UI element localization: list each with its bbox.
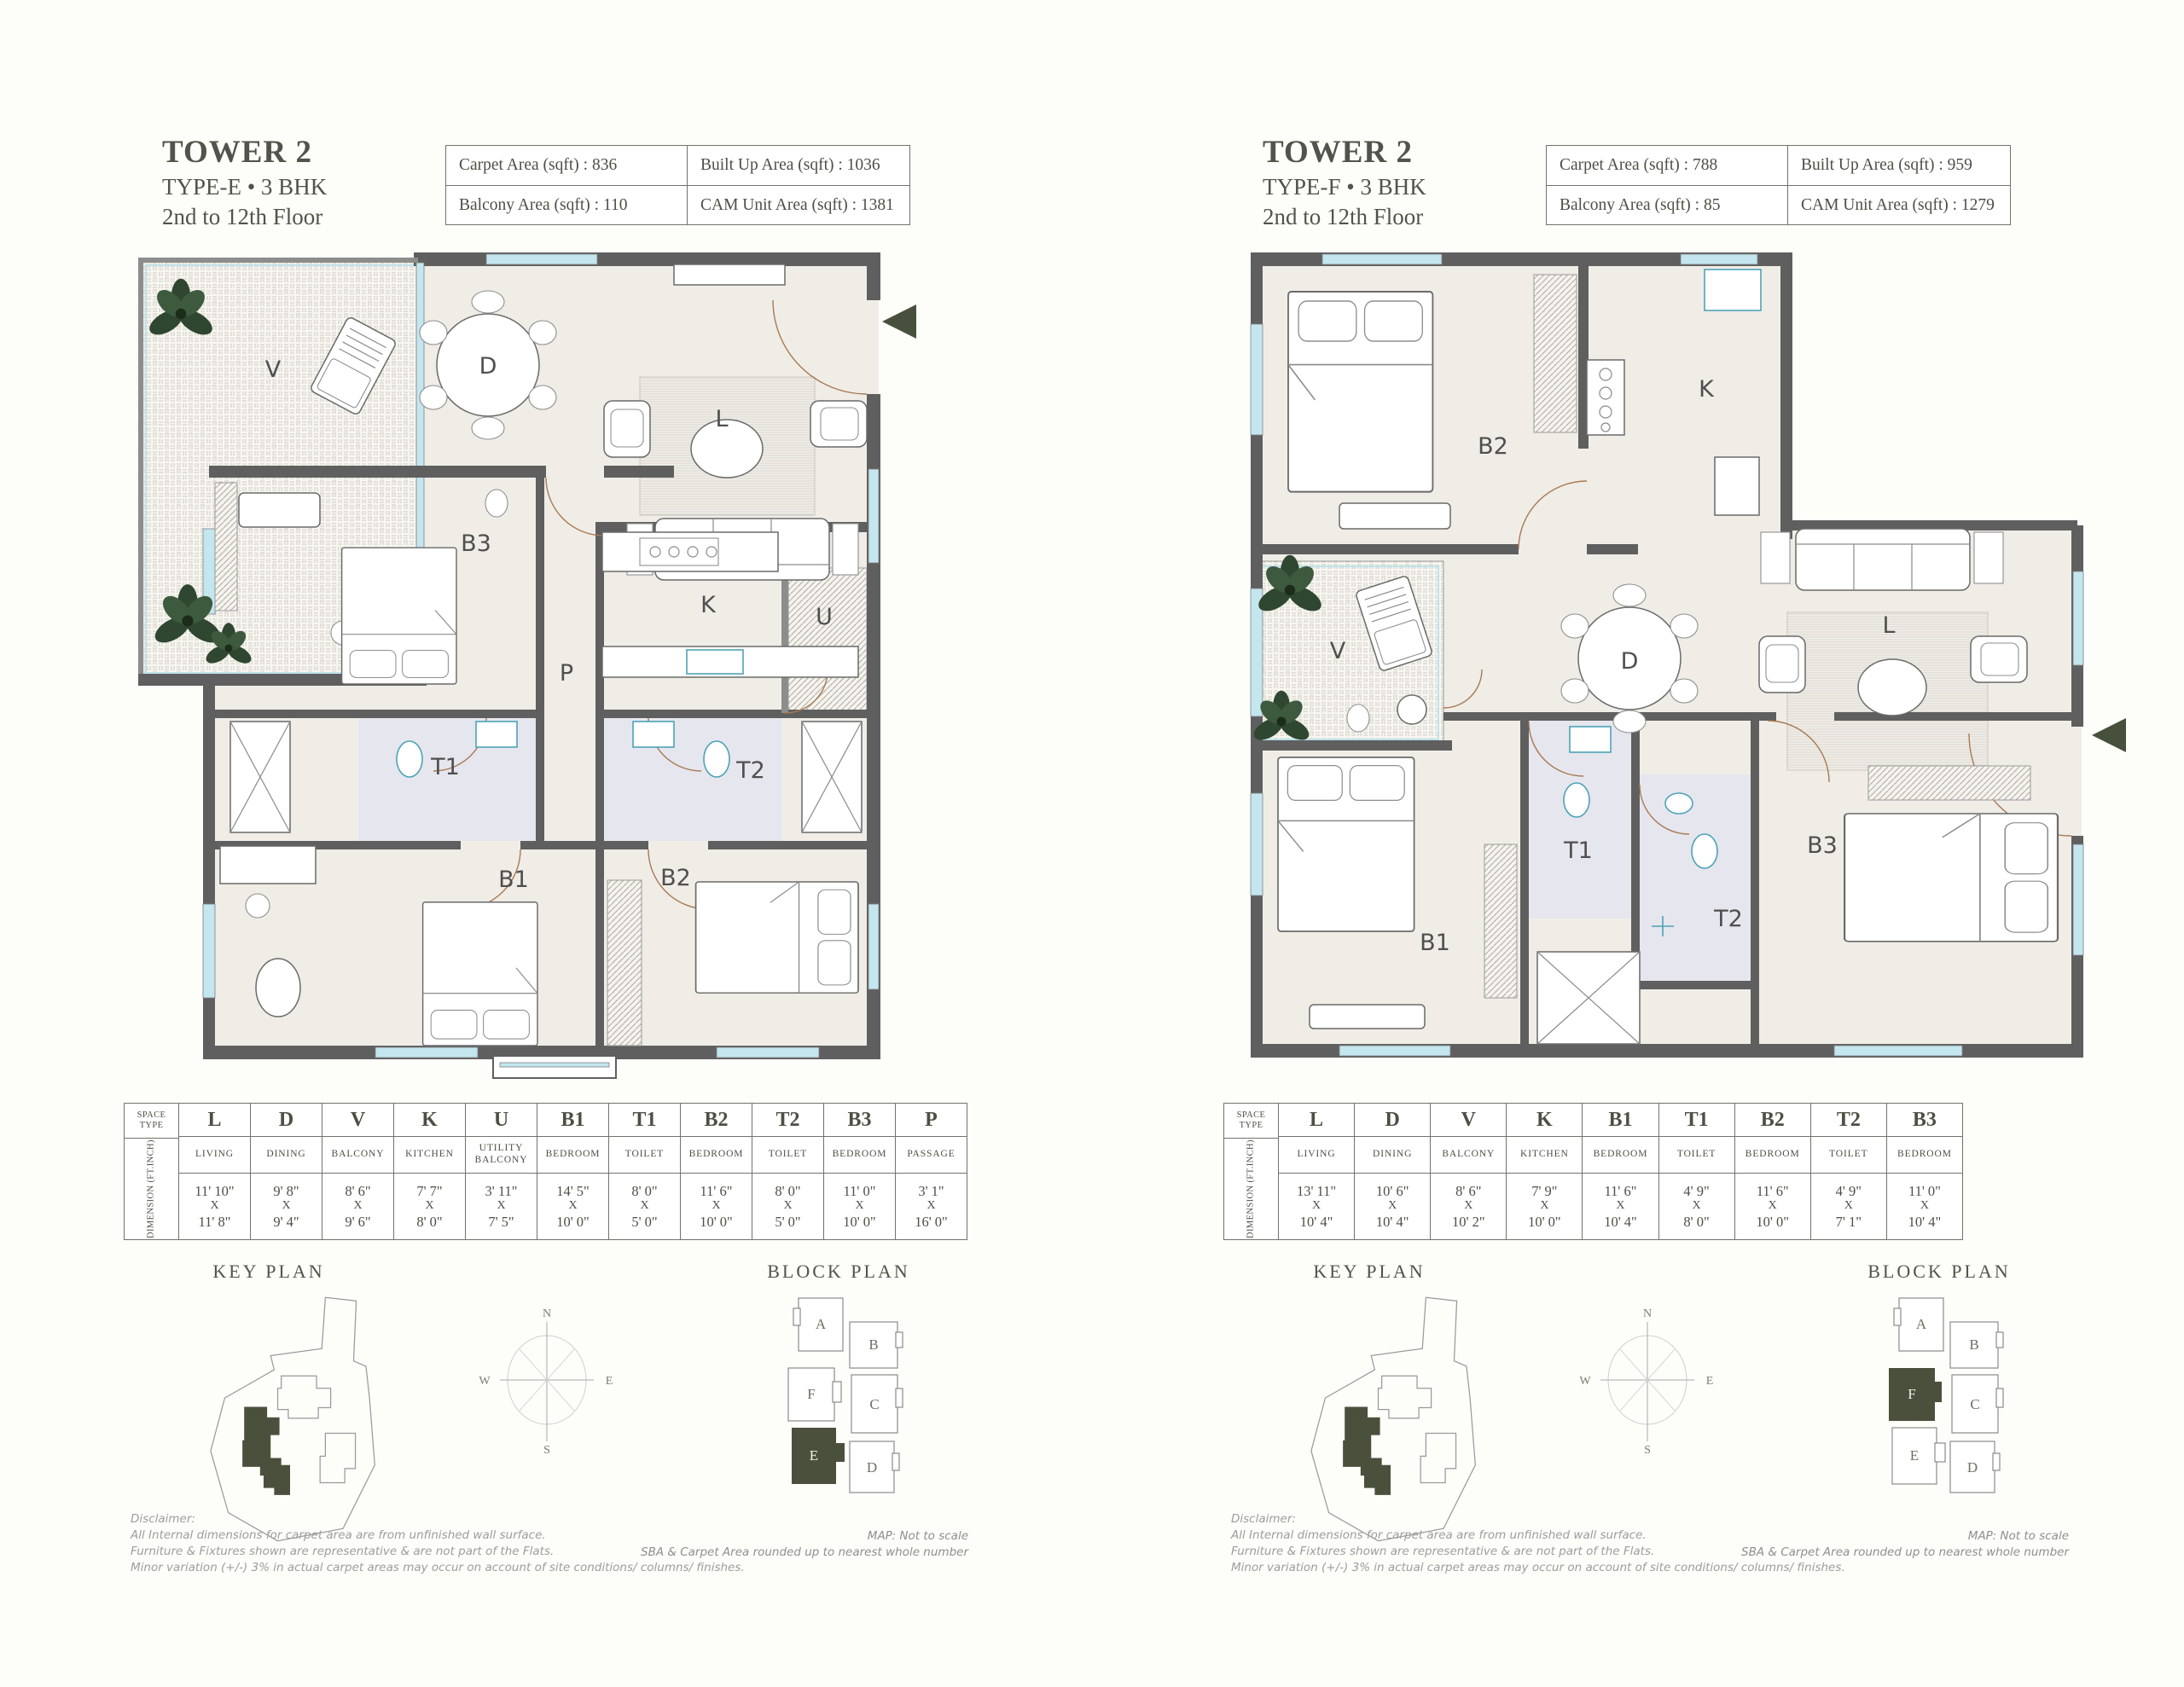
dim-separator: X	[855, 1199, 863, 1214]
dim-first: 8' 6"	[1455, 1183, 1481, 1199]
right-toilet2-floor	[1640, 774, 1759, 988]
dim-separator: X	[568, 1199, 577, 1214]
compass-west-label: W	[1579, 1375, 1591, 1388]
room-label-p: P	[560, 660, 573, 687]
dim-first: 7' 7"	[416, 1183, 442, 1199]
dim-second: 10' 4"	[1376, 1214, 1409, 1230]
dim-value-k: 7' 9"X10' 0"	[1507, 1174, 1582, 1239]
dim-value-t1: 4' 9"X8' 0"	[1659, 1174, 1734, 1239]
room-label-l: L	[1882, 612, 1895, 639]
dim-second: 10' 0"	[1756, 1214, 1789, 1230]
space-code: V	[1431, 1104, 1506, 1137]
right-map-note: MAP: Not to scale SBA & Carpet Area roun…	[1689, 1528, 2069, 1561]
dim-second: 10' 4"	[1908, 1214, 1942, 1230]
dim-first: 13' 11"	[1297, 1183, 1336, 1199]
left-block-plan-title: BLOCK PLAN	[741, 1261, 937, 1283]
dim-second: 8' 0"	[1683, 1214, 1709, 1230]
dim-separator: X	[1693, 1199, 1701, 1214]
room-label-t2: T2	[735, 757, 765, 784]
dim-table-label-column: SPACE TYPEDIMENSION (FT.INCH)	[1224, 1104, 1278, 1239]
room-label-k: K	[700, 592, 717, 618]
right-compass: N E S W	[1575, 1303, 1720, 1457]
dim-table-column-v: VBALCONY8' 6"X9' 6"	[322, 1104, 393, 1239]
left-compass: N E S W	[474, 1303, 619, 1457]
space-name: BEDROOM	[681, 1137, 752, 1174]
disclaimer-line: Minor variation (+/-) 3% in actual carpe…	[131, 1560, 745, 1576]
dim-value-t1: 8' 0"X5' 0"	[609, 1174, 680, 1239]
dim-separator: X	[425, 1199, 433, 1214]
compass-north-label: N	[1643, 1307, 1652, 1320]
space-code: V	[322, 1104, 393, 1137]
dim-value-v: 8' 6"X9' 6"	[322, 1174, 393, 1239]
dim-value-b2: 11' 6"X10' 0"	[1735, 1174, 1810, 1239]
dim-second: 10' 0"	[556, 1214, 590, 1230]
map-note-line1: MAP: Not to scale	[1689, 1528, 2069, 1545]
dimension-row-label: DIMENSION (FT.INCH)	[125, 1139, 178, 1239]
right-area-table: Carpet Area (sqft) : 788 Built Up Area (…	[1546, 145, 2011, 225]
room-label-b2: B2	[660, 865, 691, 891]
dim-separator: X	[1388, 1199, 1397, 1214]
dim-first: 3' 11"	[485, 1183, 518, 1199]
dim-value-v: 8' 6"X10' 2"	[1431, 1174, 1506, 1239]
left-key-plan	[149, 1292, 431, 1548]
dim-first: 11' 0"	[844, 1183, 876, 1199]
dim-separator: X	[353, 1199, 362, 1214]
dim-separator: X	[1464, 1199, 1472, 1214]
space-code: T1	[609, 1104, 680, 1137]
disclaimer-line: Minor variation (+/-) 3% in actual carpe…	[1231, 1560, 1845, 1576]
space-code: T2	[752, 1104, 823, 1137]
room-label-v: V	[1330, 638, 1346, 664]
compass-south-label: S	[543, 1444, 550, 1457]
space-code: U	[466, 1104, 537, 1137]
left-floor-range: 2nd to 12th Floor	[162, 206, 327, 229]
room-label-t2: T2	[1713, 906, 1743, 932]
space-code: B1	[537, 1104, 608, 1137]
dim-table-column-b2: B2BEDROOM11' 6"X10' 0"	[1734, 1104, 1810, 1239]
block-f-label: F	[1908, 1386, 1915, 1402]
right-dimension-table: SPACE TYPEDIMENSION (FT.INCH)LLIVING13' …	[1223, 1103, 1963, 1240]
right-shaft	[1537, 952, 1640, 1044]
dim-value-p: 3' 1"X16' 0"	[896, 1174, 967, 1239]
dim-second: 8' 0"	[416, 1214, 442, 1230]
dim-table-column-p: PPASSAGE3' 1"X16' 0"	[895, 1104, 967, 1239]
dim-value-t2: 8' 0"X5' 0"	[752, 1174, 823, 1239]
space-name: TOILET	[752, 1137, 823, 1174]
right-key-plan-title: KEY PLAN	[1275, 1261, 1463, 1283]
space-name: UTILITY BALCONY	[466, 1137, 537, 1174]
space-name: PASSAGE	[896, 1137, 967, 1174]
dim-value-d: 9' 8"X9' 4"	[251, 1174, 322, 1239]
dim-first: 10' 6"	[1376, 1183, 1409, 1199]
dim-second: 9' 4"	[273, 1214, 299, 1230]
right-carpet-area: Carpet Area (sqft) : 788	[1547, 146, 1787, 185]
dim-second: 10' 0"	[1528, 1214, 1561, 1230]
left-map-note: MAP: Not to scale SBA & Carpet Area roun…	[589, 1528, 968, 1561]
left-type-subtitle: TYPE-E • 3 BHK	[162, 176, 327, 199]
space-code: K	[1507, 1104, 1582, 1137]
dim-first: 11' 6"	[1757, 1183, 1789, 1199]
dim-separator: X	[1769, 1199, 1777, 1214]
dim-table-column-b1: B1BEDROOM11' 6"X10' 4"	[1582, 1104, 1658, 1239]
right-title-block: TOWER 2 TYPE-F • 3 BHK 2nd to 12th Floor	[1263, 136, 1426, 229]
room-label-d: D	[1621, 648, 1639, 675]
dim-table-column-b3: B3BEDROOM11' 0"X10' 4"	[1886, 1104, 1962, 1239]
dim-separator: X	[1920, 1199, 1929, 1214]
compass-east-label: E	[1706, 1375, 1714, 1388]
dim-table-column-l: LLIVING11' 10"X11' 8"	[178, 1104, 250, 1239]
room-label-v: V	[265, 357, 282, 383]
left-balcony-area: Balcony Area (sqft) : 110	[446, 185, 687, 224]
block-f-label: F	[807, 1386, 815, 1402]
disclaimer-heading: Disclaimer:	[131, 1511, 745, 1528]
room-label-d: D	[479, 353, 497, 380]
space-code: D	[1355, 1104, 1430, 1137]
dim-second: 10' 0"	[700, 1214, 733, 1230]
block-c-label: C	[1970, 1396, 1979, 1412]
right-bedroom3-furniture	[1844, 766, 2058, 942]
dim-first: 8' 0"	[775, 1183, 800, 1199]
dim-table-column-t2: T2TOILET8' 0"X5' 0"	[752, 1104, 823, 1239]
compass-south-label: S	[1644, 1444, 1651, 1457]
dim-first: 4' 9"	[1683, 1183, 1709, 1199]
dim-value-k: 7' 7"X8' 0"	[394, 1174, 465, 1239]
space-name: BEDROOM	[824, 1137, 895, 1174]
space-code: D	[251, 1104, 322, 1137]
right-balcony-area: Balcony Area (sqft) : 85	[1547, 185, 1787, 224]
dim-second: 5' 0"	[775, 1214, 800, 1230]
dim-value-l: 11' 10"X11' 8"	[179, 1174, 250, 1239]
block-e-label: E	[1910, 1447, 1919, 1464]
dim-second: 10' 4"	[1604, 1214, 1637, 1230]
block-a-label: A	[1916, 1316, 1927, 1332]
dim-first: 11' 0"	[1908, 1183, 1941, 1199]
space-type-corner-label: SPACE TYPE	[1224, 1104, 1278, 1139]
right-floor-plan: B2KVDLT1T2B3B1	[1237, 247, 2141, 1083]
dim-second: 7' 1"	[1836, 1214, 1862, 1230]
map-note-line2: SBA & Carpet Area rounded up to nearest …	[589, 1545, 968, 1561]
room-label-b3: B3	[1807, 832, 1838, 859]
dim-first: 11' 6"	[1605, 1183, 1637, 1199]
dim-value-u: 3' 11"X7' 5"	[466, 1174, 537, 1239]
dim-table-column-d: DDINING10' 6"X10' 4"	[1354, 1104, 1430, 1239]
dim-value-b1: 14' 5"X10' 0"	[537, 1174, 608, 1239]
right-block-plan-title: BLOCK PLAN	[1841, 1261, 2037, 1283]
space-name: BEDROOM	[537, 1137, 608, 1174]
dim-table-column-k: KKITCHEN7' 7"X8' 0"	[393, 1104, 465, 1239]
dim-second: 10' 0"	[843, 1214, 876, 1230]
compass-north-label: N	[543, 1307, 551, 1320]
left-tower-title: TOWER 2	[162, 136, 327, 168]
space-code: L	[179, 1104, 250, 1137]
dim-separator: X	[926, 1199, 935, 1214]
left-carpet-area: Carpet Area (sqft) : 836	[446, 146, 687, 185]
space-name: BALCONY	[1431, 1137, 1506, 1174]
dim-separator: X	[497, 1199, 505, 1214]
space-code: K	[394, 1104, 465, 1137]
room-label-b2: B2	[1478, 433, 1508, 460]
dimension-row-label: DIMENSION (FT.INCH)	[1224, 1139, 1278, 1239]
left-title-block: TOWER 2 TYPE-E • 3 BHK 2nd to 12th Floor	[162, 136, 327, 229]
compass-east-label: E	[606, 1375, 613, 1388]
dim-value-t2: 4' 9"X7' 1"	[1811, 1174, 1886, 1239]
left-key-plan-title: KEY PLAN	[175, 1261, 363, 1283]
dim-value-b3: 11' 0"X10' 0"	[824, 1174, 895, 1239]
dim-separator: X	[1616, 1199, 1624, 1214]
room-label-u: U	[816, 604, 833, 630]
dim-table-column-b2: B2BEDROOM11' 6"X10' 0"	[680, 1104, 752, 1239]
dim-second: 7' 5"	[488, 1214, 514, 1230]
dim-first: 9' 8"	[273, 1183, 299, 1199]
space-name: BEDROOM	[1887, 1137, 1962, 1174]
dim-first: 7' 9"	[1531, 1183, 1557, 1199]
dim-table-column-l: LLIVING13' 11"X10' 4"	[1278, 1104, 1354, 1239]
dim-first: 4' 9"	[1836, 1183, 1862, 1199]
dim-separator: X	[1844, 1199, 1853, 1214]
dim-second: 10' 2"	[1452, 1214, 1485, 1230]
space-name: DINING	[251, 1137, 322, 1174]
dim-table-column-v: VBALCONY8' 6"X10' 2"	[1430, 1104, 1506, 1239]
left-utility-floor	[788, 568, 867, 713]
space-type-corner-label: SPACE TYPE	[125, 1104, 178, 1139]
dim-table-label-column: SPACE TYPEDIMENSION (FT.INCH)	[125, 1104, 178, 1239]
left-floor-plan: VDLB3KUPT1T2B1B2	[128, 247, 938, 1083]
room-label-t1: T1	[1563, 838, 1593, 864]
dim-second: 5' 0"	[631, 1214, 657, 1230]
room-label-b1: B1	[1420, 930, 1450, 956]
space-name: BALCONY	[322, 1137, 393, 1174]
block-a-label: A	[816, 1316, 827, 1332]
right-block-plan: A B F C E D	[1858, 1290, 2037, 1537]
dim-separator: X	[1540, 1199, 1548, 1214]
dim-table-column-t1: T1TOILET8' 0"X5' 0"	[608, 1104, 680, 1239]
left-dimension-table: SPACE TYPEDIMENSION (FT.INCH)LLIVING11' …	[124, 1103, 967, 1240]
dim-separator: X	[640, 1199, 648, 1214]
dim-value-b2: 11' 6"X10' 0"	[681, 1174, 752, 1239]
dim-second: 16' 0"	[915, 1214, 948, 1230]
right-builtup-area: Built Up Area (sqft) : 959	[1787, 146, 2010, 185]
dim-table-column-t2: T2TOILET4' 9"X7' 1"	[1810, 1104, 1886, 1239]
space-name: LIVING	[1279, 1137, 1354, 1174]
space-name: BEDROOM	[1735, 1137, 1810, 1174]
right-type-subtitle: TYPE-F • 3 BHK	[1263, 176, 1426, 199]
right-cam-area: CAM Unit Area (sqft) : 1279	[1787, 185, 2010, 224]
right-floor-range: 2nd to 12th Floor	[1263, 206, 1426, 229]
disclaimer-heading: Disclaimer:	[1231, 1511, 1845, 1528]
dim-value-d: 10' 6"X10' 4"	[1355, 1174, 1430, 1239]
left-block-plan: A B F C E D	[758, 1290, 937, 1537]
left-area-table: Carpet Area (sqft) : 836 Built Up Area (…	[445, 145, 910, 225]
space-name: TOILET	[1659, 1137, 1734, 1174]
map-note-line1: MAP: Not to scale	[589, 1528, 968, 1545]
dim-table-column-u: UUTILITY BALCONY3' 11"X7' 5"	[465, 1104, 537, 1239]
room-label-l: L	[715, 406, 728, 432]
dim-table-column-b3: B3BEDROOM11' 0"X10' 0"	[823, 1104, 895, 1239]
space-code: P	[896, 1104, 967, 1137]
dim-separator: X	[783, 1199, 792, 1214]
block-c-label: C	[869, 1396, 879, 1412]
left-builtup-area: Built Up Area (sqft) : 1036	[687, 146, 909, 185]
dim-first: 11' 6"	[700, 1183, 733, 1199]
space-name: TOILET	[609, 1137, 680, 1174]
dim-first: 3' 1"	[918, 1183, 944, 1199]
compass-west-label: W	[479, 1375, 491, 1388]
dim-table-column-b1: B1BEDROOM14' 5"X10' 0"	[537, 1104, 608, 1239]
dim-first: 8' 6"	[345, 1183, 370, 1199]
room-label-b1: B1	[498, 867, 529, 893]
dim-value-l: 13' 11"X10' 4"	[1279, 1174, 1354, 1239]
dim-separator: X	[712, 1199, 720, 1214]
dim-first: 14' 5"	[556, 1183, 590, 1199]
space-name: KITCHEN	[1507, 1137, 1582, 1174]
room-label-b3: B3	[461, 530, 491, 557]
dim-second: 10' 4"	[1300, 1214, 1333, 1230]
space-code: B2	[681, 1104, 752, 1137]
space-name: DINING	[1355, 1137, 1430, 1174]
dim-value-b3: 11' 0"X10' 4"	[1887, 1174, 1962, 1239]
space-code: B2	[1735, 1104, 1810, 1137]
dim-table-column-t1: T1TOILET4' 9"X8' 0"	[1658, 1104, 1734, 1239]
dim-separator: X	[282, 1199, 290, 1214]
block-e-label: E	[810, 1447, 818, 1464]
right-tower-title: TOWER 2	[1263, 136, 1426, 168]
space-name: BEDROOM	[1583, 1137, 1658, 1174]
room-label-t1: T1	[430, 754, 460, 780]
dim-value-b1: 11' 6"X10' 4"	[1583, 1174, 1658, 1239]
dim-separator: X	[210, 1199, 218, 1214]
block-b-label: B	[1969, 1336, 1978, 1353]
space-code: B1	[1583, 1104, 1658, 1137]
space-code: B3	[1887, 1104, 1962, 1137]
block-d-label: D	[867, 1459, 877, 1475]
dim-second: 11' 8"	[199, 1214, 231, 1230]
dim-second: 9' 6"	[345, 1214, 370, 1230]
block-b-label: B	[868, 1336, 878, 1353]
left-cam-area: CAM Unit Area (sqft) : 1381	[687, 185, 909, 224]
dim-table-column-d: DDINING9' 8"X9' 4"	[250, 1104, 322, 1239]
space-name: TOILET	[1811, 1137, 1886, 1174]
right-entrance-arrow-icon	[2092, 718, 2126, 752]
dim-first: 8' 0"	[631, 1183, 657, 1199]
map-note-line2: SBA & Carpet Area rounded up to nearest …	[1689, 1545, 2069, 1561]
left-entrance-arrow-icon	[882, 304, 916, 339]
space-code: B3	[824, 1104, 895, 1137]
space-code: L	[1279, 1104, 1354, 1137]
block-d-label: D	[1967, 1459, 1978, 1475]
space-code: T2	[1811, 1104, 1886, 1137]
dim-table-column-k: KKITCHEN7' 9"X10' 0"	[1506, 1104, 1582, 1239]
right-key-plan	[1250, 1292, 1531, 1548]
space-code: T1	[1659, 1104, 1734, 1137]
space-name: KITCHEN	[394, 1137, 465, 1174]
room-label-k: K	[1699, 376, 1715, 403]
dim-separator: X	[1312, 1199, 1321, 1214]
dim-first: 11' 10"	[195, 1183, 234, 1199]
space-name: LIVING	[179, 1137, 250, 1174]
